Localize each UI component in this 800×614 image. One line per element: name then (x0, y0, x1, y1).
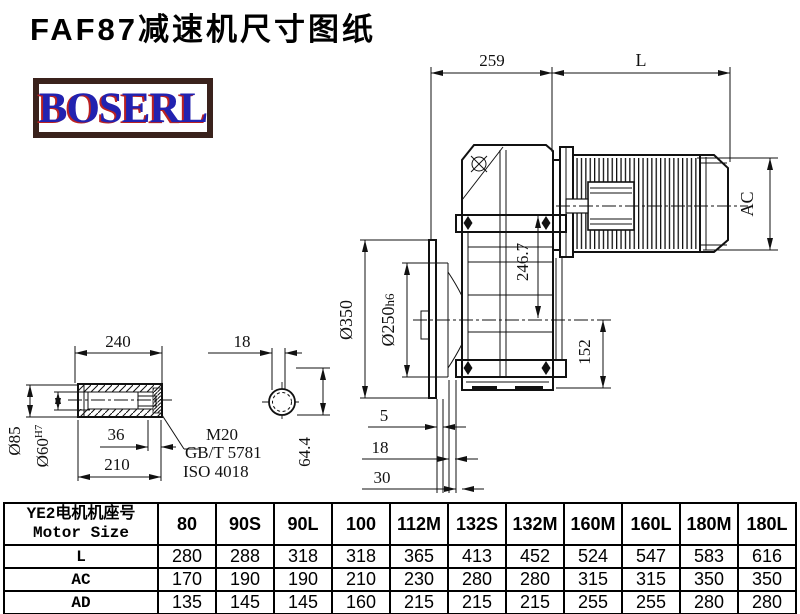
table-col-132M: 132M (506, 503, 564, 545)
dim-AC: AC (737, 191, 757, 216)
table-cell: 145 (274, 591, 332, 614)
table-cell: 160 (332, 591, 390, 614)
dim-L: L (636, 50, 647, 70)
table-row-L: L280288318318365413452524547583616 (4, 545, 796, 568)
table-cell: 616 (738, 545, 796, 568)
table-cell: 190 (274, 568, 332, 591)
table-cell: 350 (680, 568, 738, 591)
table-cell: 413 (448, 545, 506, 568)
table-col-90S: 90S (216, 503, 274, 545)
table-cell: 288 (216, 545, 274, 568)
table-cell: 135 (158, 591, 216, 614)
table-cell: 315 (564, 568, 622, 591)
dim-60h7: Ø60H7 (33, 424, 52, 467)
table-cell: 230 (390, 568, 448, 591)
table-row-label: L (4, 545, 158, 568)
dim-259: 259 (479, 51, 505, 70)
eyebolt-icon (471, 156, 487, 172)
drawing-sheet: FAF87减速机尺寸图纸 BOSERL (0, 0, 800, 614)
dimension-drawing: 259 L AC 246.7 152 Ø350 Ø250h6 5 18 30 2… (0, 0, 800, 502)
motor-size-table: YE2电机机座号Motor Size8090S90L100112M132S132… (3, 502, 797, 614)
table-cell: 315 (622, 568, 680, 591)
dim-36: 36 (108, 425, 125, 444)
table-cell: 280 (448, 568, 506, 591)
table-col-80: 80 (158, 503, 216, 545)
table-cell: 452 (506, 545, 564, 568)
table-col-160M: 160M (564, 503, 622, 545)
table-cell: 350 (738, 568, 796, 591)
table-col-100: 100 (332, 503, 390, 545)
output-shaft-side-view (78, 384, 200, 449)
table-cell: 280 (680, 591, 738, 614)
table-col-112M: 112M (390, 503, 448, 545)
dim-250h6: Ø250h6 (378, 293, 398, 347)
dim-240: 240 (105, 332, 131, 351)
gearbox-housing (456, 145, 566, 390)
dim-key-18: 18 (234, 332, 251, 351)
table-cell: 255 (564, 591, 622, 614)
table-row-AC: AC170190190210230280280315315350350 (4, 568, 796, 591)
table-col-160L: 160L (622, 503, 680, 545)
dim-85: Ø85 (5, 426, 24, 455)
dim-5: 5 (380, 406, 389, 425)
dim-30: 30 (374, 468, 391, 487)
dim-18: 18 (372, 438, 389, 457)
table-cell: 318 (332, 545, 390, 568)
table-cell: 280 (738, 591, 796, 614)
table-cell: 215 (506, 591, 564, 614)
label-gbt-5781: GB/T 5781 (185, 443, 262, 462)
label-m20: M20 (206, 425, 238, 444)
table-cell: 215 (390, 591, 448, 614)
table-cell: 524 (564, 545, 622, 568)
table-cell: 280 (506, 568, 564, 591)
dim-210: 210 (104, 455, 130, 474)
table-cell: 280 (158, 545, 216, 568)
table-cell: 145 (216, 591, 274, 614)
dimension-lines (26, 67, 778, 489)
table-row-label: AD (4, 591, 158, 614)
table-row-AD: AD135145145160215215215255255280280 (4, 591, 796, 614)
table-header-motor-size: YE2电机机座号Motor Size (4, 503, 158, 545)
table-cell: 547 (622, 545, 680, 568)
table-col-132S: 132S (448, 503, 506, 545)
dim-64-4: 64.4 (295, 437, 314, 467)
motor (553, 147, 728, 257)
table-row-label: AC (4, 568, 158, 591)
table-cell: 215 (448, 591, 506, 614)
table-col-180L: 180L (738, 503, 796, 545)
table-col-180M: 180M (680, 503, 738, 545)
shaft-end-view (269, 389, 295, 415)
table-cell: 210 (332, 568, 390, 591)
table-cell: 255 (622, 591, 680, 614)
table-cell: 583 (680, 545, 738, 568)
table-cell: 318 (274, 545, 332, 568)
table-col-90L: 90L (274, 503, 332, 545)
label-iso-4018: ISO 4018 (183, 462, 249, 481)
table-cell: 170 (158, 568, 216, 591)
dim-152: 152 (575, 339, 594, 365)
table-cell: 365 (390, 545, 448, 568)
dim-350: Ø350 (336, 300, 356, 340)
dim-246-7: 246.7 (513, 242, 532, 281)
table-cell: 190 (216, 568, 274, 591)
